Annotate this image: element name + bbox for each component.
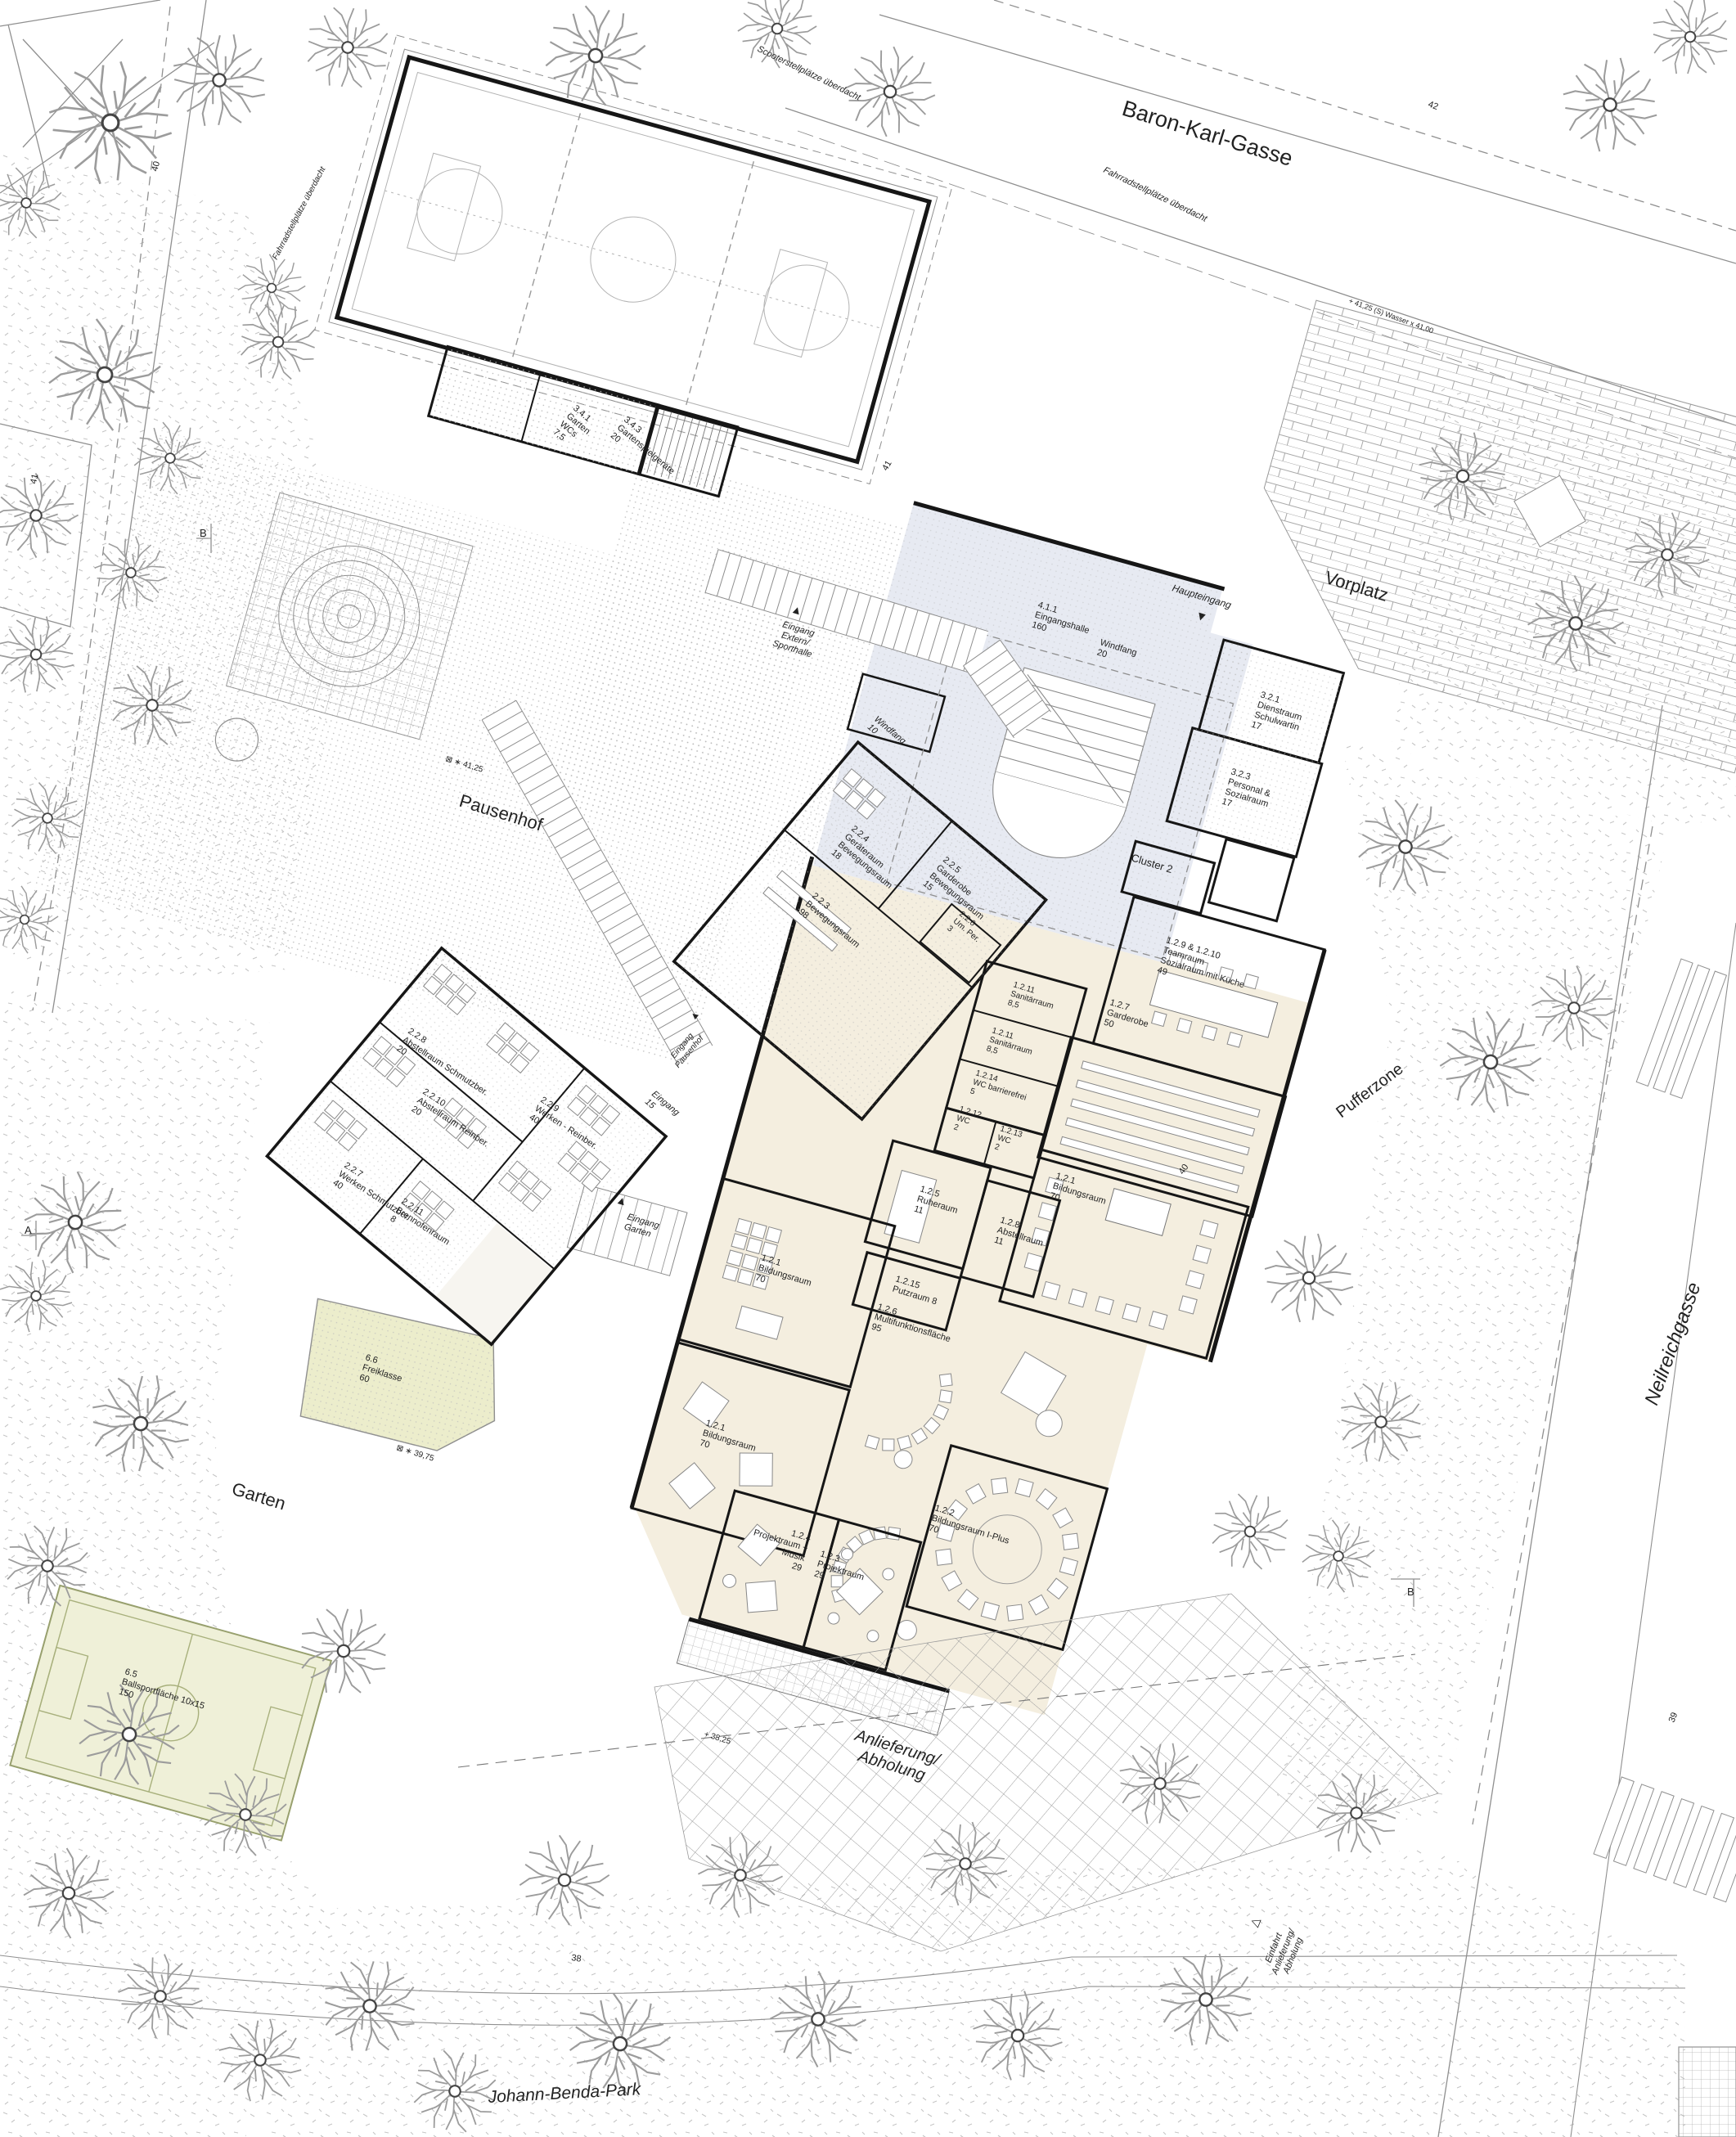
tree-icon xyxy=(525,0,665,126)
furniture xyxy=(1176,1019,1191,1033)
furniture xyxy=(831,1576,843,1587)
label-contour-41-left: 41 xyxy=(29,473,40,484)
tree-icon xyxy=(147,8,290,151)
tree-icon xyxy=(1538,33,1683,178)
furniture xyxy=(1202,1025,1217,1040)
label-contour-40-left: 40 xyxy=(150,160,162,173)
crosswalk xyxy=(1594,1777,1736,1902)
furniture xyxy=(936,1549,952,1565)
tree-icon xyxy=(1197,1478,1303,1585)
label-contour-41-mid: 41 xyxy=(880,459,894,473)
furniture xyxy=(939,1374,952,1387)
site-plan: Baron-Karl-GasseNeilreichgasseJohann-Ben… xyxy=(0,0,1736,2137)
label-scooterstellplaetze: Scooterstellplätze überdacht xyxy=(756,44,863,103)
furniture xyxy=(992,1478,1008,1494)
furniture xyxy=(897,1436,911,1450)
tree-icon xyxy=(1259,1228,1359,1328)
label-garten: Garten xyxy=(230,1478,289,1514)
furniture xyxy=(1227,1033,1242,1047)
furniture xyxy=(1007,1604,1023,1621)
label-contour-38: 38 xyxy=(571,1953,582,1964)
street-parking xyxy=(1636,959,1726,1099)
label-section-b-right: B xyxy=(1407,1586,1414,1598)
furniture xyxy=(883,1439,894,1451)
label-fahrradstellplaetze-1: Fahrradstellplätze überdacht xyxy=(1102,165,1209,224)
site-plan-svg: Baron-Karl-GasseNeilreichgasseJohann-Ben… xyxy=(0,0,1736,2137)
tree-icon xyxy=(292,0,403,103)
label-baron-karl-gasse: Baron-Karl-Gasse xyxy=(1119,96,1295,171)
furniture xyxy=(1152,1011,1167,1026)
label-contour-39: 39 xyxy=(1667,1711,1680,1724)
tree-icon xyxy=(1641,0,1736,86)
label-contour-42: 42 xyxy=(1427,100,1440,112)
furniture xyxy=(939,1390,952,1403)
label-fahrradstellplaetze-2: Fahrradstellplätze überdacht xyxy=(271,164,328,261)
furniture xyxy=(1063,1533,1079,1550)
furniture xyxy=(1244,974,1258,988)
label-section-b-left: B xyxy=(200,527,207,539)
label-section-a-left: A xyxy=(25,1224,32,1236)
